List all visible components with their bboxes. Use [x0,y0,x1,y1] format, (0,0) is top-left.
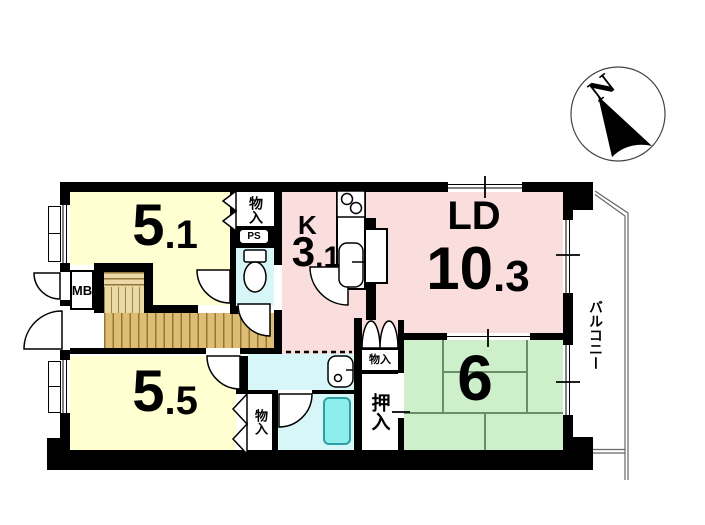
oshiire-label: 押入 [362,376,398,448]
meter-box-door-arc [34,273,60,299]
room-japanese-label: 6 [433,346,517,410]
toilet-door-arc [238,304,270,336]
room-kitchen-label: 3.1 [276,231,356,273]
balcony-label: バルコニー [584,283,606,387]
western1-door-arc [197,270,230,303]
bifold-door-symbol [362,321,398,348]
stove-icon [337,191,365,217]
closet-lower-label: 物入 [247,394,272,450]
closet-hall-label: 物入 [360,354,400,365]
bathtub-icon [324,398,350,444]
floor-plan: MB PS [0,0,705,525]
closet-upper-label: 物入 [236,192,274,228]
bathroom-door-arc [279,394,312,427]
room-western1-label: 5.1 [95,197,235,255]
toilet-icon [244,250,266,292]
entrance-door-arc [24,311,62,349]
washbasin-icon [328,356,353,387]
room-western2-label: 5.5 [95,363,235,421]
room-ld-abbr: LD [436,196,512,236]
room-ld-label: 10.3 [402,239,554,299]
